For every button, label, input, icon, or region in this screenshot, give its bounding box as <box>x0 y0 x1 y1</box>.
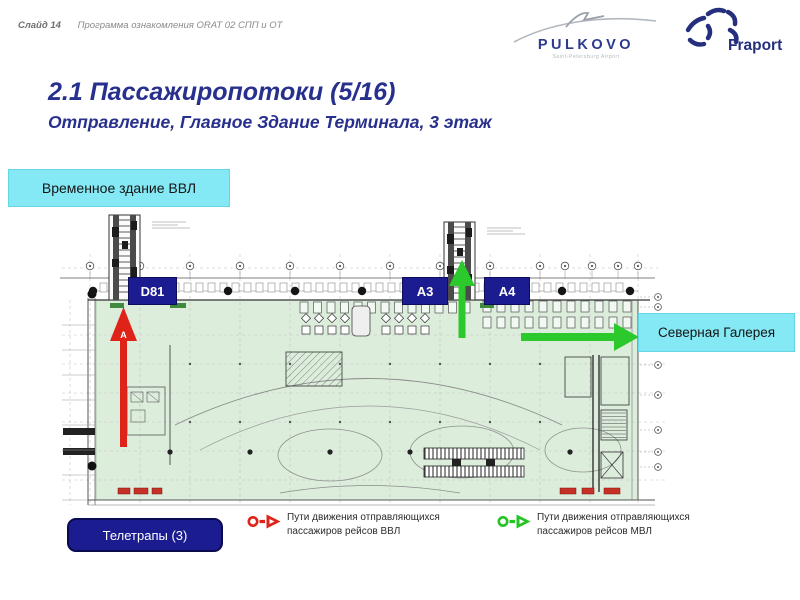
callout-north-gallery: Северная Галерея <box>638 313 795 352</box>
slide-number-label: Слайд 14 <box>18 20 61 31</box>
slide-header: Слайд 14 Программа ознакомления ORAT 02 … <box>18 20 282 31</box>
gate-label-a3: A3 <box>402 277 448 305</box>
legend-text-mvl: Пути движения отправляющихся пассажиров … <box>537 511 690 538</box>
callout-temporary-building: Временное здание ВВЛ <box>8 169 230 207</box>
escalator-block <box>286 352 342 386</box>
legend-vvl-line1: Пути движения отправляющихся <box>287 511 440 525</box>
pulkovo-logo: PULKOVO Saint-Petersburg Airport <box>508 4 663 62</box>
legend-mvl-line2: пассажиров рейсов МВЛ <box>537 525 690 539</box>
info-kiosk <box>352 306 370 336</box>
jet-bridges-button[interactable]: Телетрапы (3) <box>67 518 223 552</box>
page-subtitle: Отправление, Главное Здание Терминала, 3… <box>48 112 492 133</box>
program-title: Программа ознакомления ORAT 02 СПП и ОТ <box>78 20 283 31</box>
pulkovo-tagline: Saint-Petersburg Airport <box>552 54 619 60</box>
legend-vvl-line2: пассажиров рейсов ВВЛ <box>287 525 440 539</box>
legend-icon-mvl <box>496 513 532 530</box>
plan-left-wall <box>62 290 97 506</box>
pulkovo-wordmark: PULKOVO <box>538 37 634 53</box>
fraport-logo: Fraport <box>668 4 793 58</box>
gate-label-a4: A4 <box>484 277 530 305</box>
fraport-wordmark: Fraport <box>728 37 782 54</box>
legend-text-vvl: Пути движения отправляющихся пассажиров … <box>287 511 440 538</box>
legend-mvl-line1: Пути движения отправляющихся <box>537 511 690 525</box>
legend-icon-vvl <box>246 513 282 530</box>
gate-label-d81: D81 <box>128 277 177 305</box>
floor-plan: А <box>58 212 683 508</box>
route-marker-letter: А <box>120 330 127 340</box>
page-title: 2.1 Пассажиропотоки (5/16) <box>48 78 395 107</box>
